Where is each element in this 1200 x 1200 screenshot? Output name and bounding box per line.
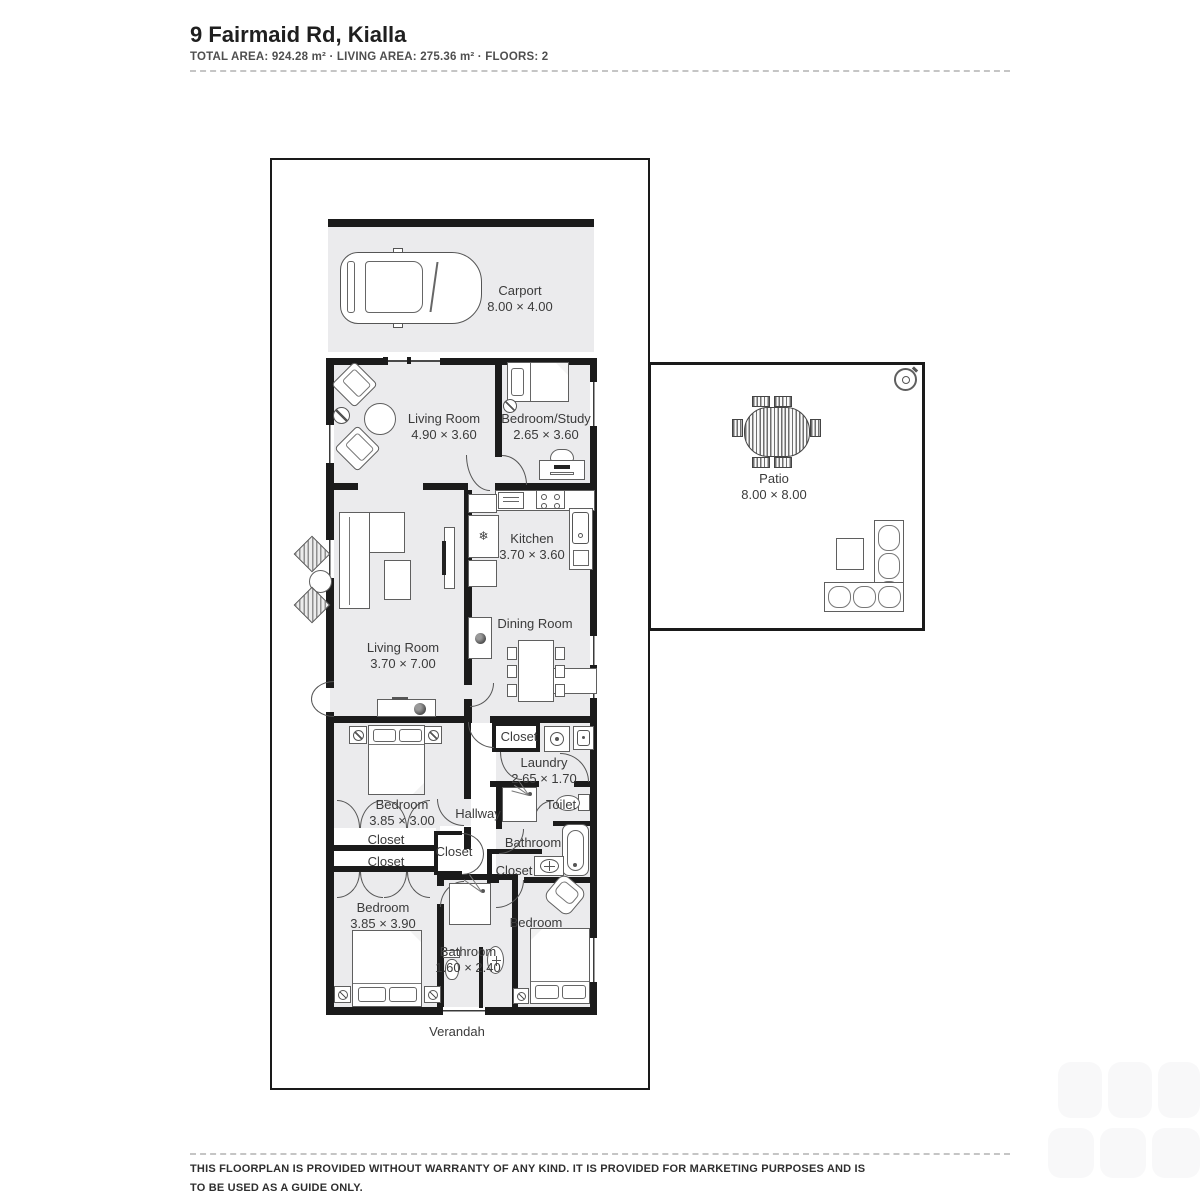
dining-chair bbox=[507, 665, 517, 678]
wall bbox=[330, 483, 358, 490]
wall bbox=[326, 845, 436, 851]
washing-machine bbox=[544, 726, 570, 752]
sofa-left bbox=[339, 512, 370, 609]
floorplan-page: 9 Fairmaid Rd, Kialla TOTAL AREA: 924.28… bbox=[0, 0, 1200, 1200]
round-table bbox=[364, 403, 396, 435]
desk-chair bbox=[550, 449, 574, 461]
window bbox=[326, 425, 334, 463]
wall bbox=[423, 483, 468, 490]
area-meta: TOTAL AREA: 924.28 m² · LIVING AREA: 275… bbox=[190, 51, 548, 63]
bathroom-sink bbox=[487, 946, 504, 974]
toilet-tank bbox=[443, 950, 460, 958]
bathtub bbox=[562, 824, 589, 876]
wall bbox=[437, 874, 444, 886]
shower bbox=[449, 883, 491, 925]
patio-table bbox=[744, 407, 810, 457]
fridge: ❄ bbox=[468, 515, 499, 558]
nightstand bbox=[513, 988, 529, 1004]
wall bbox=[326, 358, 334, 688]
side-table-lamp bbox=[333, 407, 350, 424]
patio-chair bbox=[732, 419, 743, 437]
pantry bbox=[468, 494, 497, 513]
coffee-table bbox=[384, 560, 411, 600]
fridge-icon: ❄ bbox=[478, 529, 488, 543]
dining-chair bbox=[507, 684, 517, 697]
disclaimer-line1: THIS FLOORPLAN IS PROVIDED WITHOUT WARRA… bbox=[190, 1160, 1040, 1179]
wall-lamp bbox=[503, 399, 517, 413]
wall bbox=[326, 712, 334, 1015]
double-bed bbox=[352, 930, 422, 1007]
bathroom-sink bbox=[534, 856, 564, 876]
car-icon bbox=[340, 252, 482, 324]
page-title: 9 Fairmaid Rd, Kialla bbox=[190, 22, 406, 48]
patio-chair bbox=[774, 396, 792, 407]
disclaimer-line2: TO BE USED AS A GUIDE ONLY. bbox=[190, 1179, 1040, 1198]
toilet-bowl bbox=[445, 959, 459, 980]
disclaimer: THIS FLOORPLAN IS PROVIDED WITHOUT WARRA… bbox=[190, 1160, 1040, 1198]
dining-chair bbox=[507, 647, 517, 660]
header-divider bbox=[190, 70, 1010, 72]
door-post bbox=[383, 357, 388, 365]
desk bbox=[539, 460, 585, 480]
wall bbox=[487, 849, 492, 877]
nightstand bbox=[334, 986, 351, 1003]
footer-divider bbox=[190, 1153, 1010, 1155]
shower bbox=[502, 787, 537, 822]
window bbox=[443, 1007, 485, 1015]
tv-screen bbox=[442, 541, 446, 575]
dishwasher bbox=[498, 492, 524, 509]
window bbox=[590, 382, 597, 426]
window bbox=[590, 938, 597, 982]
dining-table bbox=[518, 640, 554, 702]
patio-sofa-bottom bbox=[824, 582, 904, 612]
wall bbox=[326, 716, 472, 723]
laundry-closet-box bbox=[492, 722, 540, 752]
kitchen-sink-bench bbox=[569, 508, 593, 570]
nightstand bbox=[424, 726, 442, 744]
double-bed bbox=[368, 725, 425, 795]
toilet-bowl bbox=[556, 795, 580, 811]
laundry-sink bbox=[573, 726, 594, 750]
sliding-door-track bbox=[385, 360, 440, 362]
single-bed bbox=[507, 362, 569, 402]
patio-side-table bbox=[836, 538, 864, 570]
nightstand bbox=[424, 986, 441, 1003]
pantry bbox=[468, 560, 497, 587]
cabinet bbox=[468, 617, 492, 659]
wall bbox=[495, 362, 502, 457]
stove bbox=[536, 490, 565, 509]
patio-chair bbox=[810, 419, 821, 437]
wall bbox=[479, 947, 483, 1008]
patio-chair bbox=[752, 457, 770, 468]
dining-chair bbox=[555, 684, 565, 697]
nightstand bbox=[349, 726, 367, 744]
wall bbox=[464, 723, 471, 799]
double-bed bbox=[530, 928, 590, 1004]
patio-chair bbox=[752, 396, 770, 407]
hallway-closet-box bbox=[434, 831, 462, 875]
wall bbox=[487, 849, 542, 854]
dresser bbox=[377, 699, 436, 717]
dining-chair bbox=[555, 647, 565, 660]
wall bbox=[328, 219, 594, 227]
dining-chair bbox=[555, 665, 565, 678]
door-post bbox=[407, 357, 411, 364]
bbq-icon bbox=[894, 368, 917, 391]
patio-chair bbox=[774, 457, 792, 468]
